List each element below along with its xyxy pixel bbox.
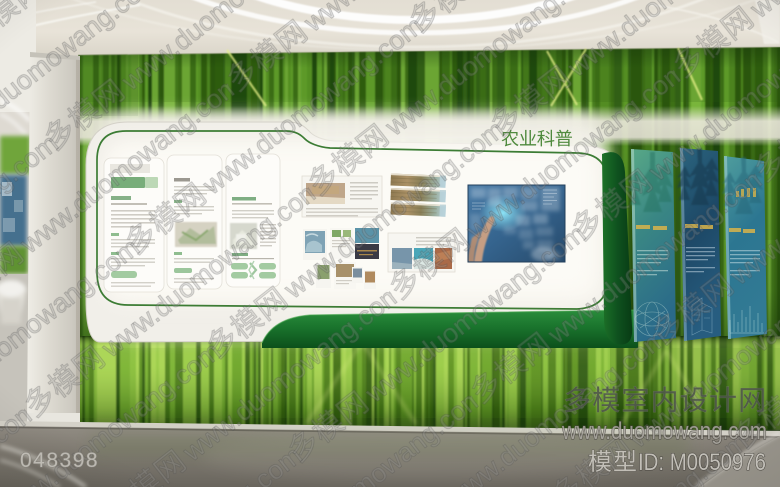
svg-text:048398: 048398 [20, 449, 99, 472]
svg-text:ID: M0050976: ID: M0050976 [638, 449, 766, 476]
svg-text:www.duomowang.com: www.duomowang.com [561, 418, 767, 445]
